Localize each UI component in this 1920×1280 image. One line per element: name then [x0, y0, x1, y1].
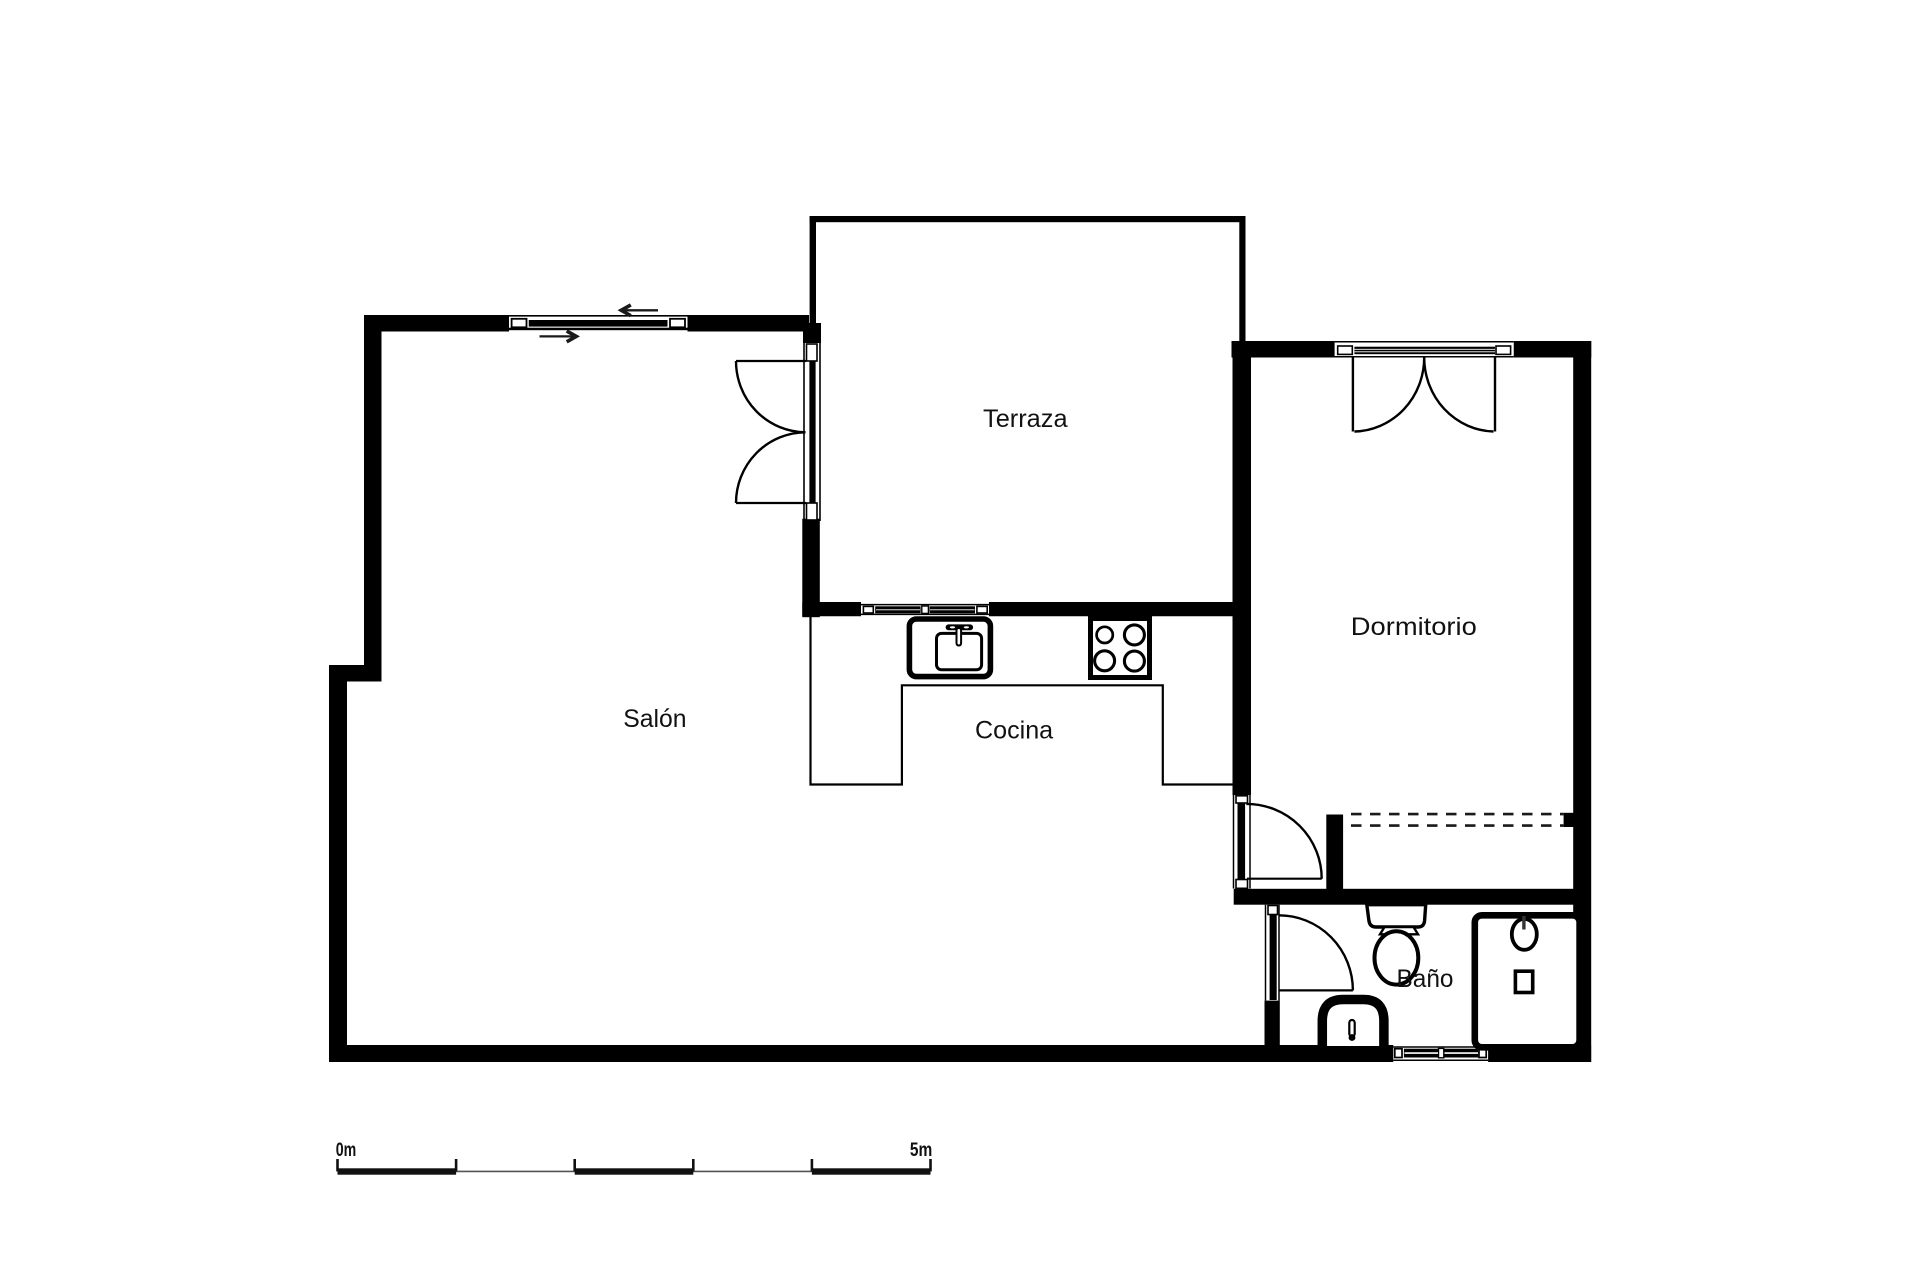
- svg-text:Baño: Baño: [1397, 965, 1454, 993]
- svg-text:Salón: Salón: [623, 705, 686, 733]
- svg-text:Terraza: Terraza: [983, 405, 1068, 433]
- svg-text:5m: 5m: [910, 1139, 932, 1161]
- svg-text:Cocina: Cocina: [975, 717, 1053, 745]
- svg-text:0m: 0m: [336, 1139, 357, 1161]
- svg-text:Dormitorio: Dormitorio: [1351, 613, 1477, 641]
